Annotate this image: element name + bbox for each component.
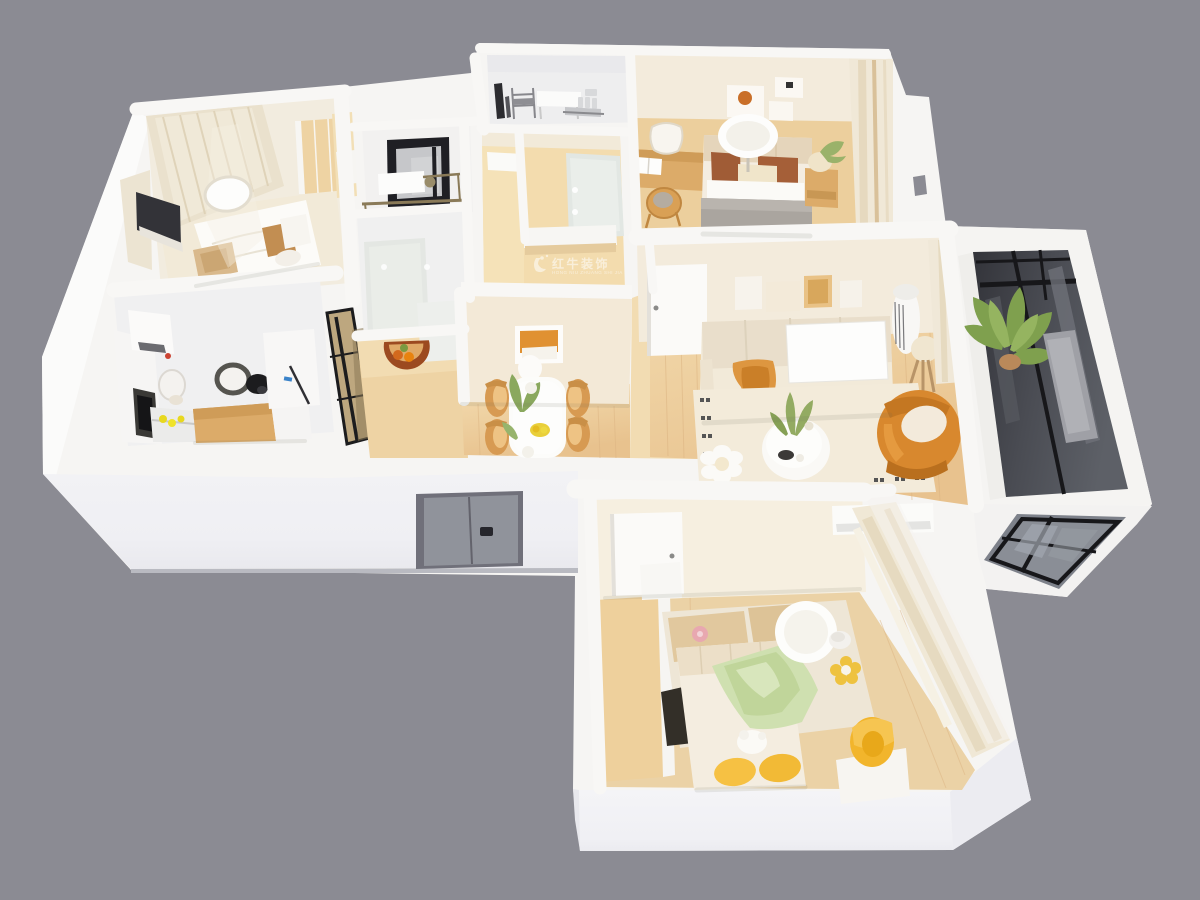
svg-text:红牛装饰: 红牛装饰 [552, 256, 610, 271]
svg-text:HONG NIU ZHUANG SHI JIA: HONG NIU ZHUANG SHI JIA [552, 270, 623, 275]
